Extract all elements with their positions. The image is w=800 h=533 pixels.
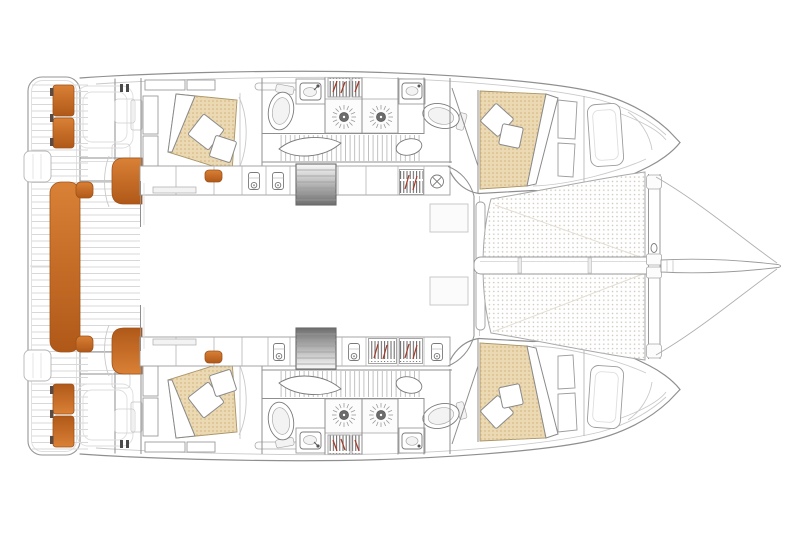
deck-plan-drawing <box>0 0 800 533</box>
starboard-entry-steps <box>296 328 336 369</box>
hanging-locker-icon <box>369 339 397 364</box>
burner-icon <box>431 175 444 188</box>
stool-cushion <box>205 170 222 182</box>
galley-appliance-icon <box>432 344 443 361</box>
galley-appliance-icon <box>273 173 284 190</box>
catamaran-deck-plan: Catamaran interior deck plan, top view, … <box>0 0 800 533</box>
bowsprit-bridle <box>656 269 777 355</box>
galley-appliance-icon <box>274 344 285 361</box>
galley-appliance-icon <box>349 344 360 361</box>
bowsprit <box>661 259 781 273</box>
port-entry-steps <box>296 164 336 205</box>
bowsprit-bridle <box>656 177 777 263</box>
center-spar <box>474 257 662 274</box>
port-galley-row <box>140 164 450 205</box>
hanging-locker-icon <box>400 170 424 195</box>
saloon-seat <box>430 204 468 232</box>
saloon-seat <box>430 277 468 305</box>
anchor-roller <box>651 244 657 253</box>
galley-appliance-icon <box>249 173 260 190</box>
stool-cushion <box>205 351 222 363</box>
starboard-galley-row <box>140 328 450 369</box>
hanging-locker-icon <box>400 339 423 364</box>
